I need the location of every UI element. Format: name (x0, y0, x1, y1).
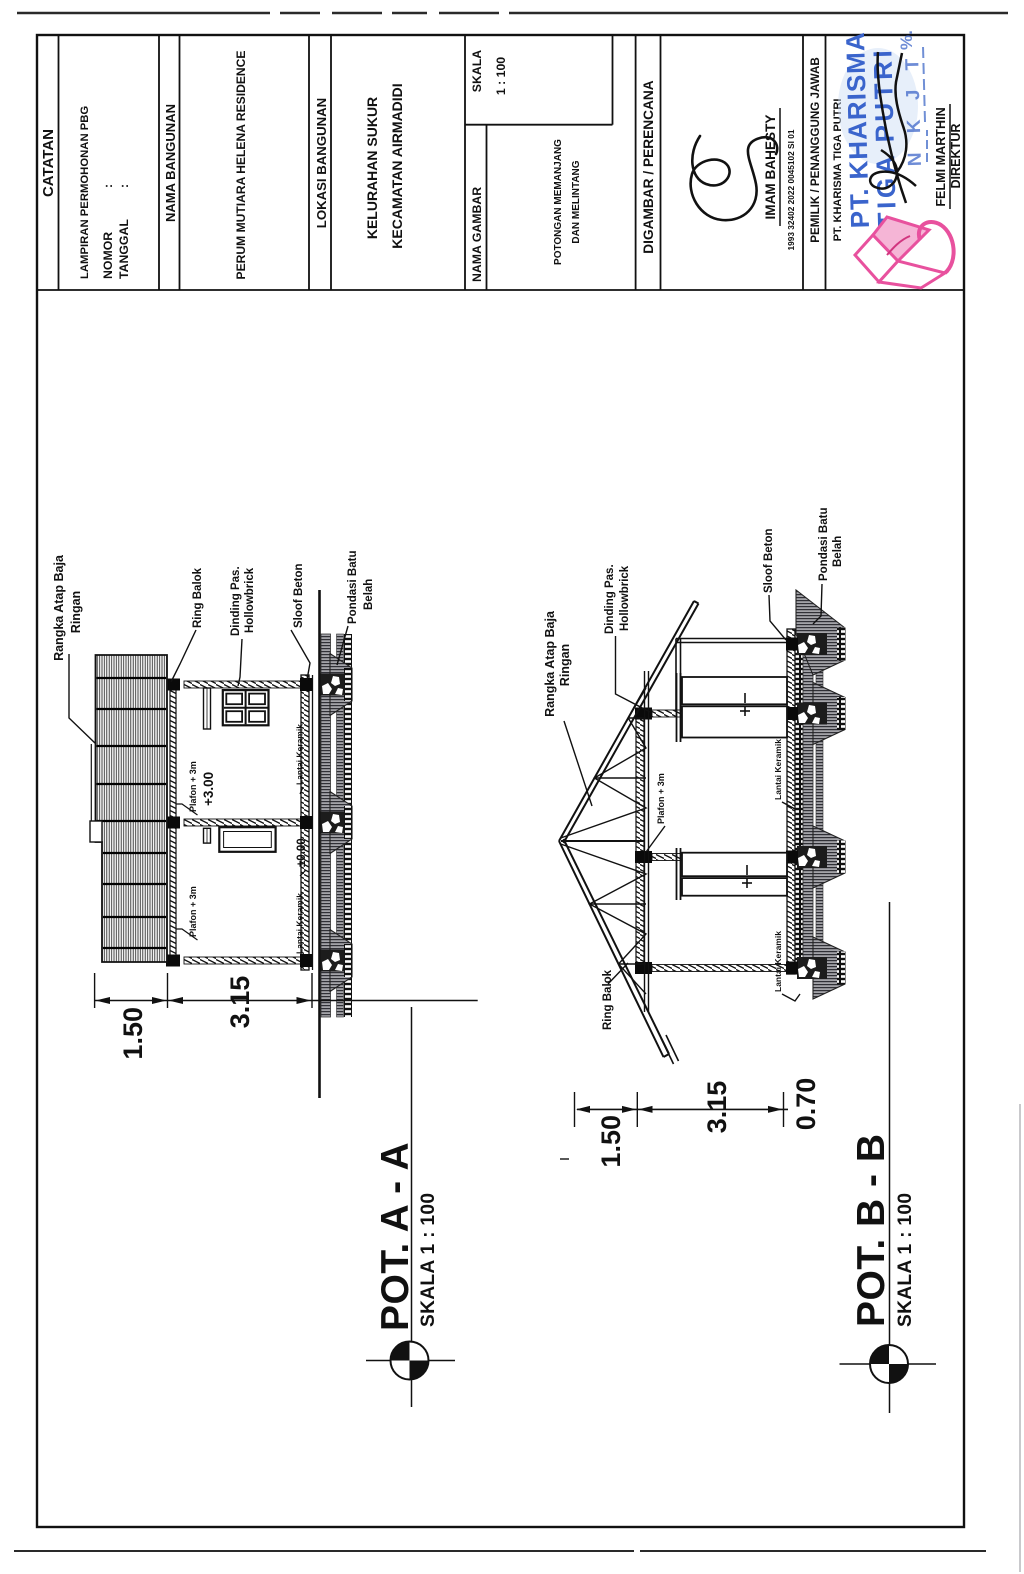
svg-text:1.50: 1.50 (118, 1007, 148, 1060)
svg-text:Ring Balok: Ring Balok (602, 969, 614, 1030)
svg-text:0.70: 0.70 (791, 1078, 821, 1131)
svg-text:Plafon + 3m: Plafon + 3m (656, 773, 666, 824)
svg-text:Pondasi Batu: Pondasi Batu (347, 551, 359, 624)
svg-text:3.15: 3.15 (702, 1081, 732, 1134)
svg-text:Lantai Keramik: Lantai Keramik (295, 893, 305, 954)
svg-text:DIGAMBAR / PERENCANA: DIGAMBAR / PERENCANA (641, 80, 656, 253)
svg-text:Hollowbrick: Hollowbrick (244, 567, 256, 633)
svg-text:NAMA BANGUNAN: NAMA BANGUNAN (163, 104, 178, 222)
svg-text:Ringan: Ringan (558, 644, 572, 686)
svg-text:Pondasi Batu: Pondasi Batu (818, 508, 830, 581)
svg-text:Belah: Belah (363, 579, 375, 610)
svg-text:%.: %. (897, 30, 916, 50)
svg-text:SKALA: SKALA (470, 50, 484, 92)
svg-text:IMAM BAHESTY: IMAM BAHESTY (763, 115, 778, 220)
svg-text:LOKASI BANGUNAN: LOKASI BANGUNAN (314, 98, 329, 228)
svg-text:Sloof Beton: Sloof Beton (763, 528, 775, 593)
svg-text:±0.00: ±0.00 (296, 838, 308, 867)
svg-text:NOMOR: NOMOR (101, 232, 115, 279)
svg-text:NAMA GAMBAR: NAMA GAMBAR (470, 187, 484, 282)
svg-text:Plafon + 3m: Plafon + 3m (188, 761, 198, 812)
svg-text:Lantai Keramik: Lantai Keramik (295, 724, 305, 785)
svg-text:3.15: 3.15 (225, 976, 255, 1029)
svg-text:Rangka Atap Baja: Rangka Atap Baja (52, 554, 66, 661)
svg-text:DAN MELINTANG: DAN MELINTANG (571, 160, 582, 243)
svg-text:PERUM MUTIARA HELENA RESIDENCE: PERUM MUTIARA HELENA RESIDENCE (234, 51, 248, 280)
svg-text:1 : 100: 1 : 100 (494, 57, 508, 95)
svg-text::: : (101, 184, 115, 188)
svg-text:KECAMATAN AIRMADIDI: KECAMATAN AIRMADIDI (389, 83, 405, 248)
svg-text:Sloof Beton: Sloof Beton (293, 563, 305, 628)
svg-text:1993 32402 2022 0045102 SI 01: 1993 32402 2022 0045102 SI 01 (786, 129, 796, 250)
svg-text:SKALA 1 : 100: SKALA 1 : 100 (418, 1193, 439, 1327)
svg-text:PEMILIK / PENANGGUNG JAWAB: PEMILIK / PENANGGUNG JAWAB (809, 57, 822, 243)
svg-text:+3.00: +3.00 (201, 772, 216, 806)
svg-text:POT. A - A: POT. A - A (374, 1142, 417, 1331)
svg-text:Lantai Keramik: Lantai Keramik (773, 739, 783, 800)
svg-text:KELURAHAN SUKUR: KELURAHAN SUKUR (364, 97, 380, 239)
svg-text:SKALA 1 : 100: SKALA 1 : 100 (895, 1193, 916, 1327)
svg-text:Ring Balok: Ring Balok (192, 567, 204, 628)
svg-text:Ringan: Ringan (69, 591, 83, 633)
svg-text:CATATAN: CATATAN (40, 129, 57, 197)
svg-text:FELMI MARTHIN: FELMI MARTHIN (934, 107, 948, 206)
svg-text:Hollowbrick: Hollowbrick (619, 565, 631, 631)
svg-text:1.50: 1.50 (596, 1115, 626, 1168)
svg-text:POT. B - B: POT. B - B (850, 1133, 893, 1327)
svg-text:Plafon + 3m: Plafon + 3m (188, 886, 198, 937)
svg-text:Belah: Belah (832, 536, 844, 567)
svg-text:Dinding Pas.: Dinding Pas. (604, 564, 616, 634)
svg-text:POTONGAN MEMANJANG: POTONGAN MEMANJANG (553, 139, 564, 265)
svg-text:LAMPIRAN PERMOHONAN PBG: LAMPIRAN PERMOHONAN PBG (79, 106, 91, 279)
svg-text:Dinding Pas.: Dinding Pas. (230, 566, 242, 636)
svg-text::: : (117, 184, 131, 188)
svg-text:TANGGAL: TANGGAL (117, 219, 131, 279)
svg-text:Lantai Keramik: Lantai Keramik (773, 931, 783, 992)
svg-text:DIREKTUR: DIREKTUR (949, 123, 963, 188)
svg-text:Rangka Atap Baja: Rangka Atap Baja (543, 610, 557, 717)
